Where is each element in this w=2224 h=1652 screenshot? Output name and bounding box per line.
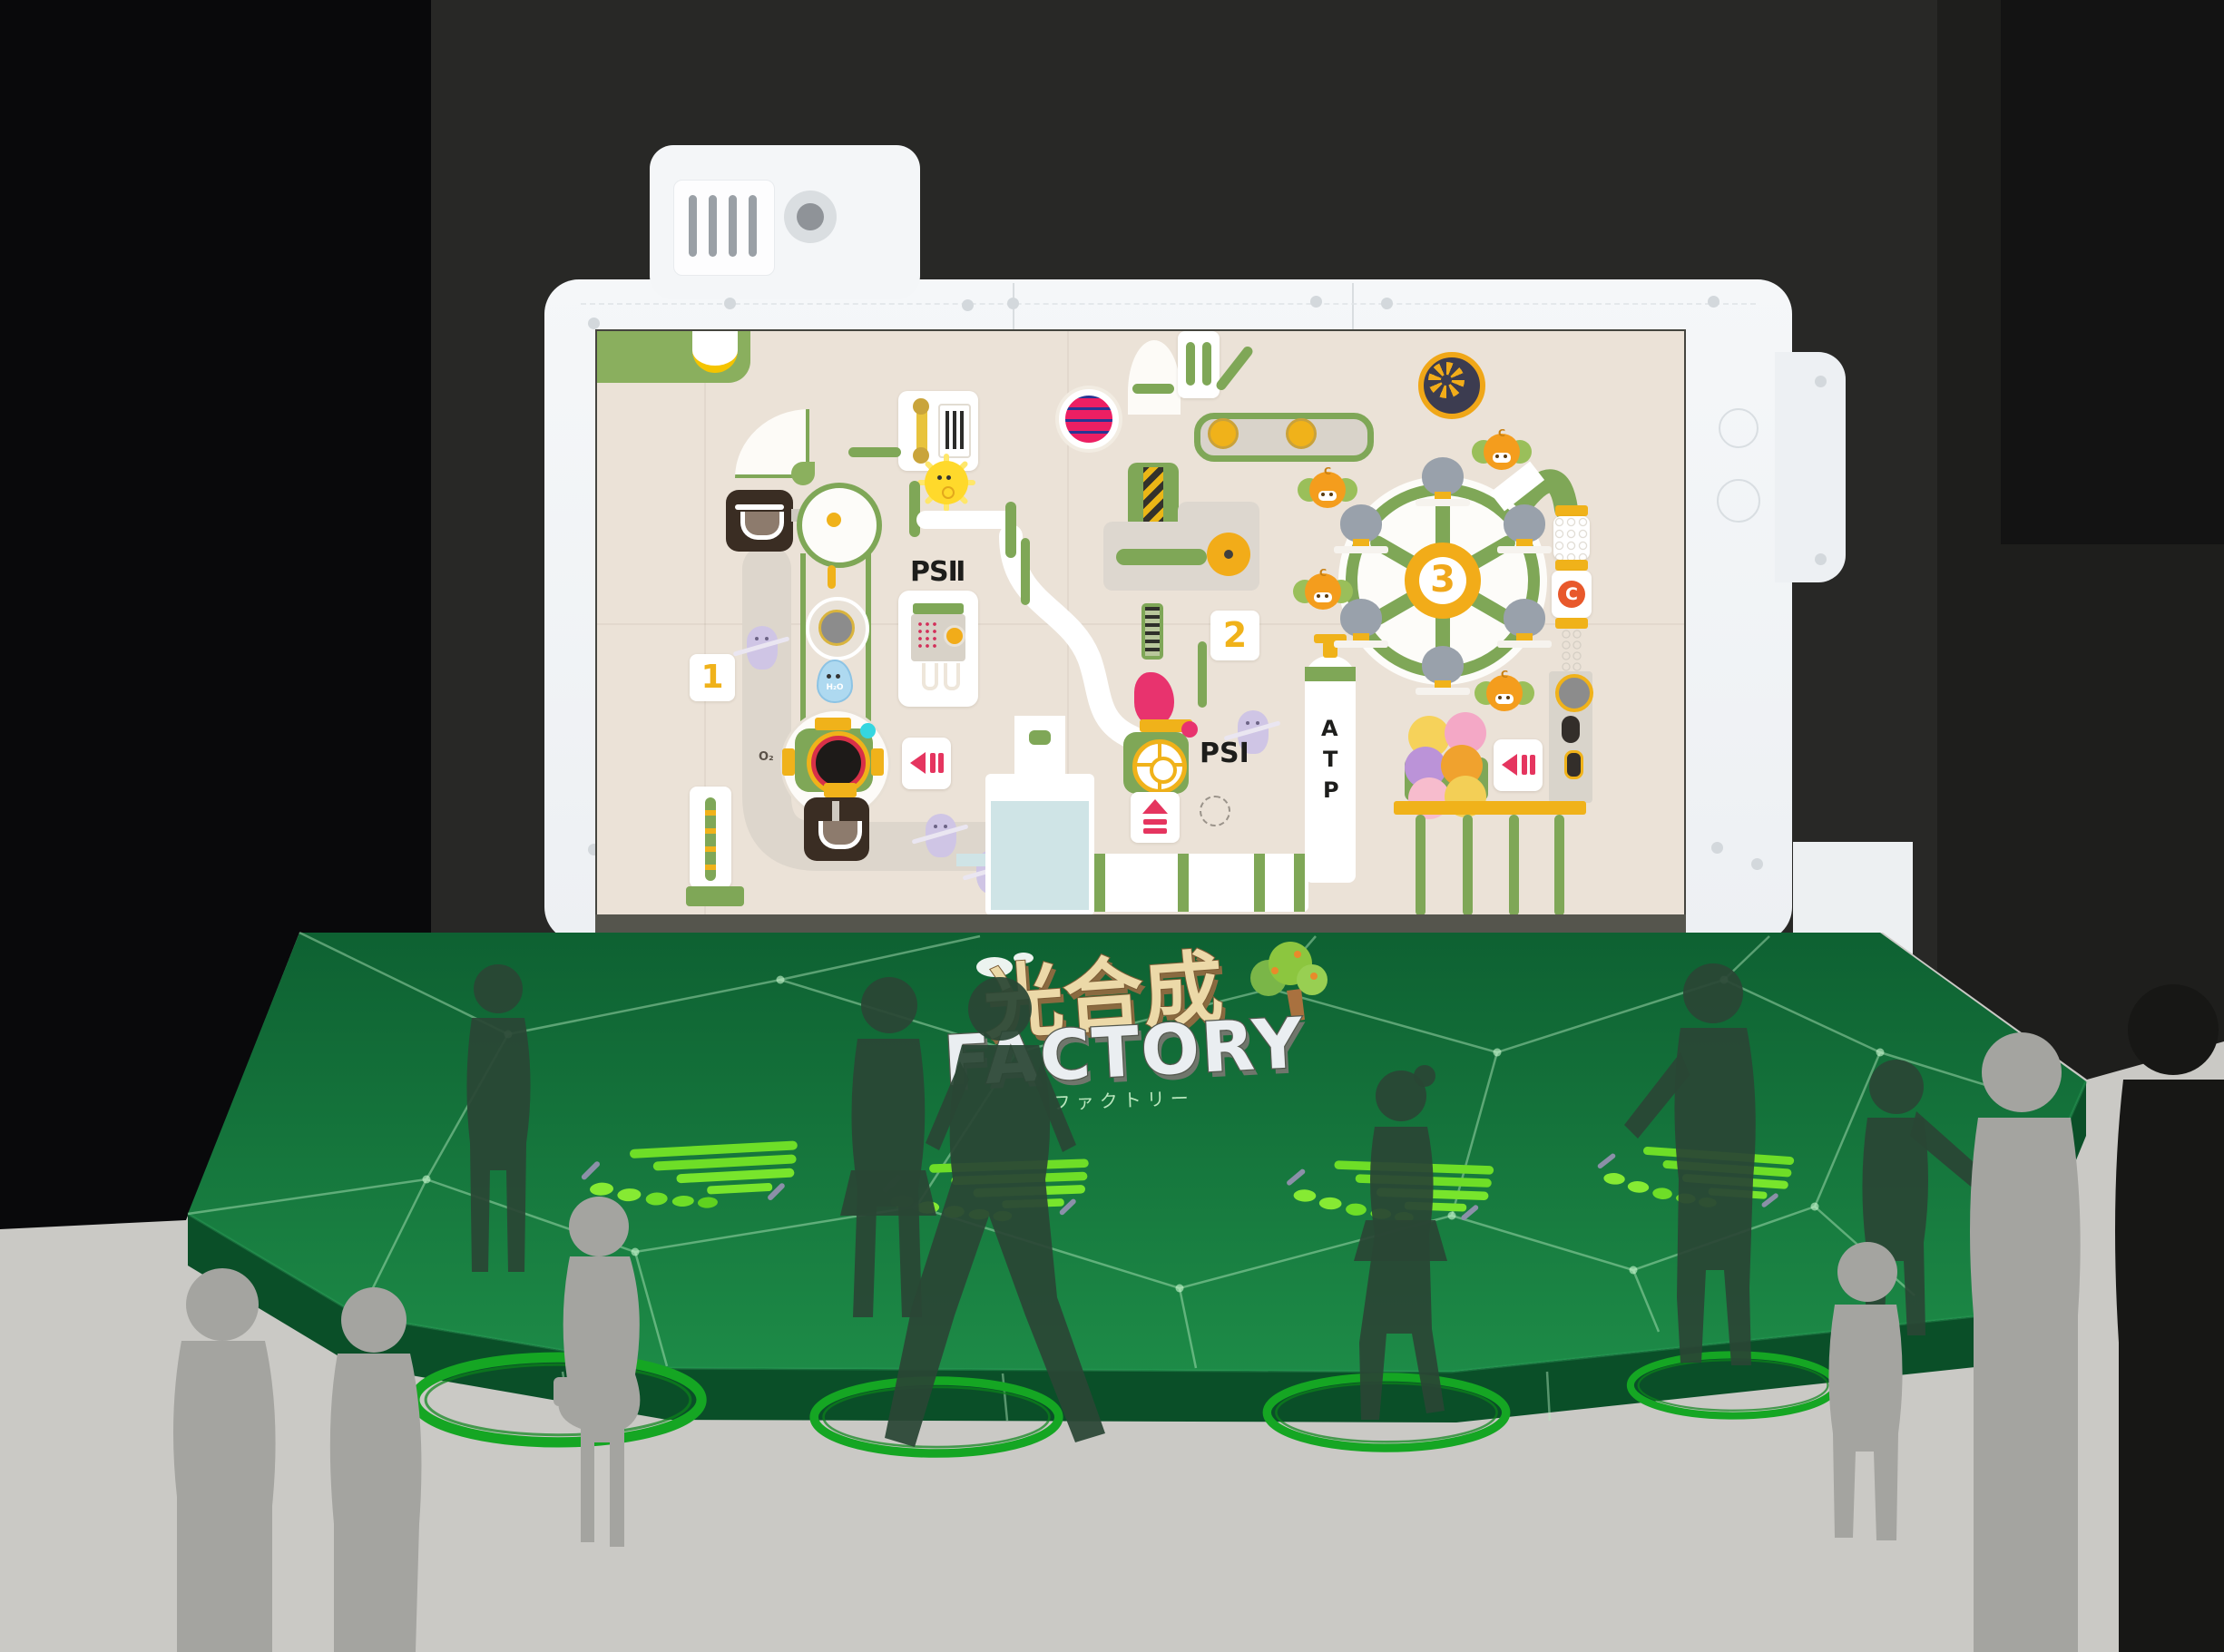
silhouette-dark-right — [2115, 984, 2224, 1652]
exhibit-scene: H₂O O₂ 1 PSⅡ — [0, 0, 2224, 1652]
stage-scene: 光合成 光合成 FACTORY FACTORY ファクトリー — [0, 0, 2224, 1652]
silhouette-adult-floor — [1970, 1032, 2081, 1652]
